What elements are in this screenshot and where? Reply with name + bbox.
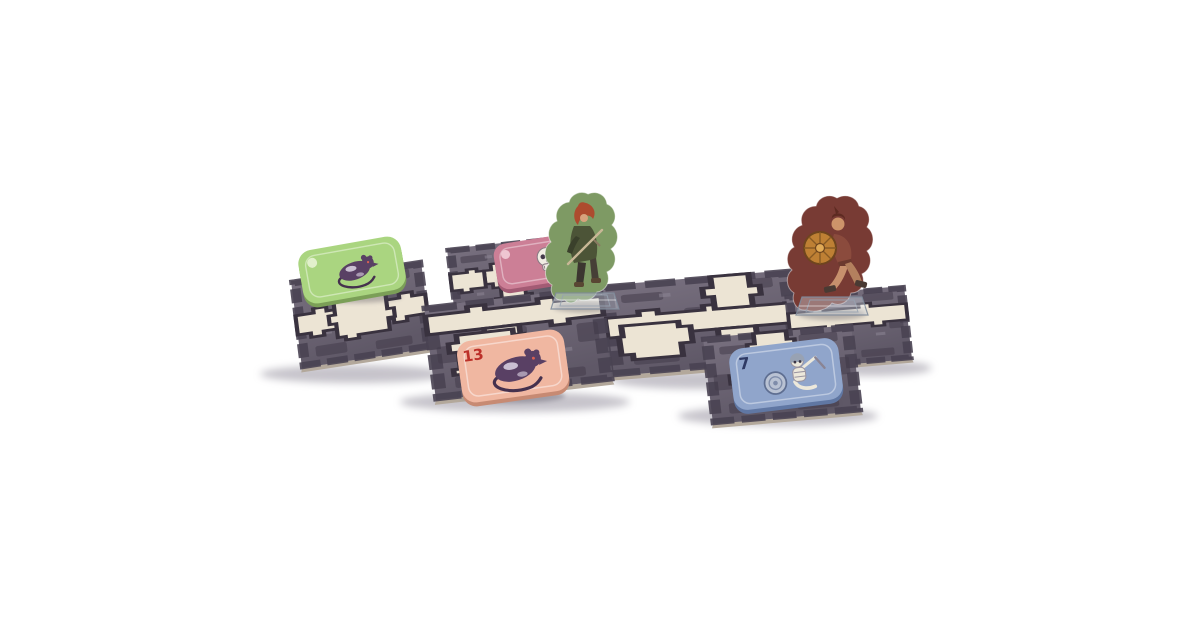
token-number: 13	[462, 345, 485, 366]
product-photo-dungeon-board: 13 7	[0, 0, 1200, 630]
hero-standee-maroon	[787, 196, 873, 315]
monster-token-blue: 7	[728, 337, 845, 416]
token-number: 7	[738, 353, 751, 373]
standee-base	[796, 297, 868, 315]
shield-icon	[804, 232, 836, 264]
standee-base	[551, 293, 619, 309]
